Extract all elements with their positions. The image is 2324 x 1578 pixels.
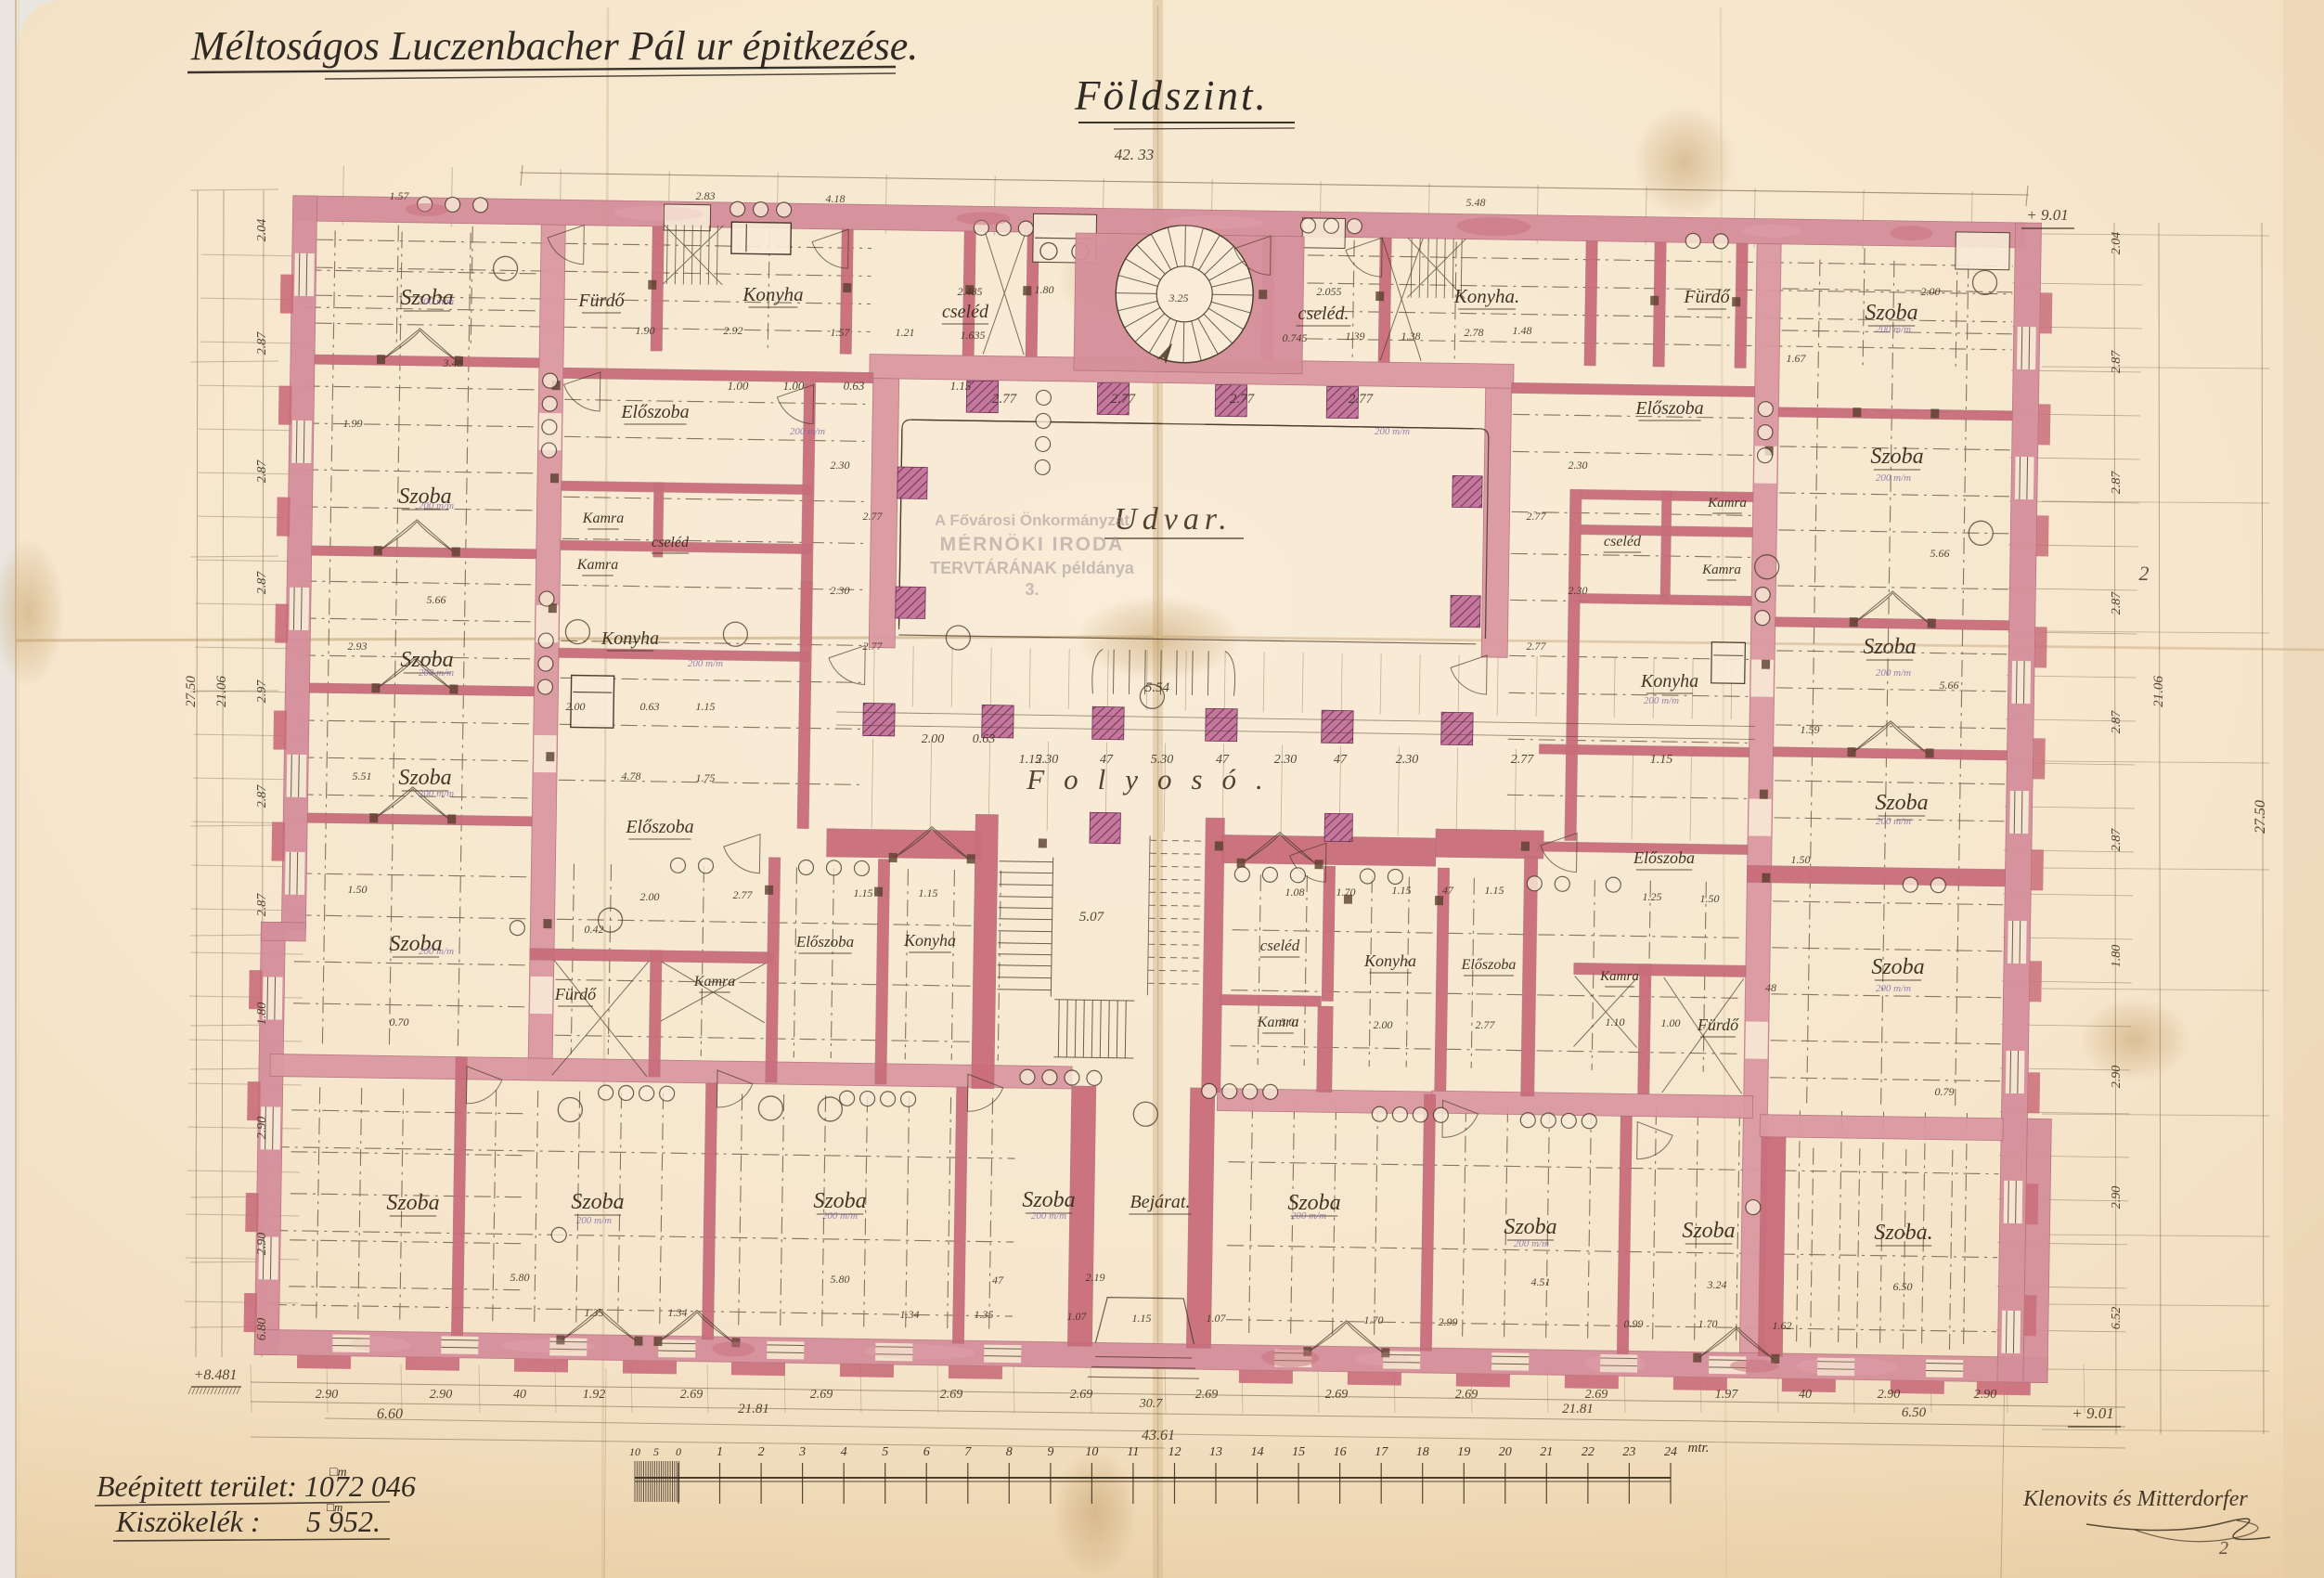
svg-text:1.15: 1.15 [950, 379, 972, 393]
svg-text:Kiszökelék :: Kiszökelék : [115, 1505, 261, 1538]
svg-text:5 952.: 5 952. [306, 1505, 381, 1538]
svg-text:cseléd: cseléd [1260, 937, 1300, 954]
svg-text:Előszoba: Előszoba [1633, 848, 1695, 867]
svg-text:Kamra: Kamra [693, 974, 735, 989]
svg-text:1.57: 1.57 [831, 326, 851, 339]
svg-text:Szoba: Szoba [398, 766, 451, 790]
svg-text:200 m/m: 200 m/m [1876, 816, 1911, 827]
svg-text:1.92: 1.92 [583, 1388, 606, 1402]
svg-text:2.19: 2.19 [1086, 1271, 1105, 1284]
svg-text:200 m/m: 200 m/m [822, 1210, 858, 1222]
svg-text:1.90: 1.90 [636, 324, 655, 337]
svg-text:Konyha: Konyha [1640, 671, 1698, 692]
svg-text:40: 40 [1799, 1388, 1812, 1402]
svg-text:200 m/m: 200 m/m [1514, 1238, 1549, 1249]
svg-text:TERVTÁRÁNAK példánya: TERVTÁRÁNAK példánya [930, 558, 1135, 577]
svg-text:2.00: 2.00 [1921, 285, 1941, 298]
svg-text:2.87: 2.87 [2110, 710, 2124, 734]
svg-text:Szoba: Szoba [1865, 301, 1917, 325]
svg-text:1.62: 1.62 [1773, 1319, 1792, 1332]
svg-text:2.30: 2.30 [831, 584, 850, 597]
svg-text:1.59: 1.59 [1801, 723, 1820, 736]
svg-text:MÉRNÖKI IRODA: MÉRNÖKI IRODA [940, 534, 1125, 555]
svg-text:2.77: 2.77 [1111, 392, 1137, 407]
svg-text:Konyha.: Konyha. [1453, 285, 1520, 307]
svg-text:Szoba: Szoba [1022, 1188, 1075, 1212]
svg-text:+ 9.01: + 9.01 [2072, 1404, 2113, 1422]
svg-text:1.80: 1.80 [2110, 945, 2124, 968]
svg-text:200 m/m: 200 m/m [1876, 667, 1911, 679]
svg-text:20: 20 [1499, 1445, 1512, 1459]
svg-text:2.77: 2.77 [1527, 510, 1547, 523]
svg-text:6: 6 [923, 1445, 930, 1459]
svg-text:2.77: 2.77 [992, 392, 1018, 407]
svg-text:2.83: 2.83 [696, 189, 716, 202]
svg-text:47: 47 [1334, 753, 1348, 767]
svg-text:Fürdő: Fürdő [577, 291, 625, 311]
svg-text:2.97: 2.97 [255, 679, 269, 704]
svg-text:2.04: 2.04 [2110, 232, 2124, 255]
svg-text:Fürdő: Fürdő [1697, 1015, 1739, 1034]
svg-text:10: 10 [1085, 1445, 1098, 1459]
svg-text:1.67: 1.67 [1787, 352, 1807, 365]
svg-text:21: 21 [1540, 1445, 1553, 1459]
svg-text:2: 2 [758, 1445, 765, 1459]
svg-text:2.90: 2.90 [255, 1117, 269, 1140]
svg-text:Klenovits és Mitterdorfer: Klenovits és Mitterdorfer [2022, 1487, 2248, 1511]
svg-text:2.30: 2.30 [1036, 753, 1059, 767]
svg-text:200 m/m: 200 m/m [1876, 983, 1911, 994]
svg-text:47: 47 [992, 1274, 1004, 1287]
svg-text:2.77: 2.77 [863, 640, 884, 653]
svg-text:2.30: 2.30 [1569, 459, 1588, 472]
svg-text:2.87: 2.87 [2110, 591, 2124, 615]
svg-text:1.15: 1.15 [1485, 884, 1504, 897]
svg-text:2.00: 2.00 [566, 700, 586, 713]
svg-text:Előszoba: Előszoba [1634, 398, 1703, 419]
svg-text:2.00: 2.00 [1374, 1018, 1393, 1031]
svg-text:5.80: 5.80 [510, 1271, 530, 1284]
svg-text:cseléd: cseléd [652, 535, 690, 550]
svg-text:4.18: 4.18 [826, 192, 846, 205]
svg-text:21.06: 21.06 [2151, 676, 2166, 707]
svg-text:21.06: 21.06 [214, 676, 229, 707]
svg-text:1.35: 1.35 [975, 1308, 994, 1321]
svg-text:2.69: 2.69 [1195, 1388, 1219, 1402]
svg-text:5.30: 5.30 [1151, 753, 1174, 767]
svg-text:+ 9.01: + 9.01 [2026, 206, 2068, 224]
svg-text:Udvar.: Udvar. [1114, 502, 1233, 537]
svg-text:□m: □m [329, 1466, 347, 1480]
svg-text:8: 8 [1006, 1445, 1013, 1459]
svg-text:10: 10 [629, 1445, 640, 1458]
svg-text:Konyha: Konyha [742, 283, 803, 305]
svg-text:Szoba: Szoba [386, 1191, 439, 1215]
svg-text:3.01: 3.01 [1280, 1015, 1300, 1028]
svg-text:200 m/m: 200 m/m [419, 788, 454, 799]
svg-text:7: 7 [964, 1445, 972, 1459]
svg-text:200 m/m: 200 m/m [576, 1215, 612, 1226]
svg-text:2.69: 2.69 [810, 1388, 833, 1402]
svg-text:1.21: 1.21 [896, 326, 915, 339]
svg-text:2.30: 2.30 [1569, 584, 1588, 597]
svg-text:200 m/m: 200 m/m [419, 946, 454, 957]
svg-text:Kamra: Kamra [1599, 969, 1639, 984]
svg-text:3.: 3. [1025, 580, 1039, 599]
svg-text:2.77: 2.77 [1349, 392, 1375, 407]
svg-text:2.77: 2.77 [1230, 392, 1256, 407]
svg-text:3: 3 [798, 1445, 806, 1459]
svg-text:3.48: 3.48 [443, 356, 463, 369]
svg-text:2.78: 2.78 [1465, 326, 1484, 339]
svg-text:42. 33: 42. 33 [1115, 146, 1155, 163]
svg-text:1.15: 1.15 [1392, 884, 1412, 897]
svg-text:200 m/m: 200 m/m [1876, 324, 1911, 335]
svg-text:1.15: 1.15 [1132, 1312, 1152, 1325]
svg-text:Szoba: Szoba [1863, 635, 1916, 659]
svg-text:1.80: 1.80 [255, 1002, 269, 1026]
svg-text:1.07: 1.07 [1207, 1312, 1227, 1325]
svg-text:1: 1 [717, 1445, 723, 1459]
svg-text:Fürdő: Fürdő [1683, 287, 1730, 307]
svg-text:1.97: 1.97 [1715, 1388, 1739, 1402]
svg-text:200 m/m: 200 m/m [688, 658, 723, 669]
svg-text:13: 13 [1209, 1445, 1222, 1459]
svg-text:Előszoba: Előszoba [795, 933, 854, 951]
svg-text:16: 16 [1334, 1445, 1347, 1459]
svg-text:23: 23 [1622, 1445, 1635, 1459]
svg-text:200 m/m: 200 m/m [1876, 472, 1911, 484]
svg-text:5.07: 5.07 [1079, 910, 1105, 925]
svg-text:1.70: 1.70 [1336, 886, 1356, 899]
svg-text:5.66: 5.66 [1940, 679, 1959, 692]
svg-text:47: 47 [1216, 753, 1230, 767]
svg-text:0.63: 0.63 [973, 732, 996, 746]
svg-text:2.87: 2.87 [2110, 828, 2124, 852]
svg-text:0.70: 0.70 [390, 1015, 409, 1028]
svg-text:2.00: 2.00 [922, 732, 945, 746]
svg-text:200 m/m: 200 m/m [1291, 1210, 1326, 1222]
svg-text:1.15: 1.15 [854, 886, 873, 899]
svg-text:9: 9 [1047, 1445, 1053, 1459]
svg-text:1.38: 1.38 [1401, 330, 1421, 343]
svg-text:1.00: 1.00 [783, 379, 805, 393]
svg-text:22: 22 [1582, 1445, 1595, 1459]
svg-text:2.00: 2.00 [640, 890, 660, 903]
svg-text:200 m/m: 200 m/m [419, 296, 454, 307]
svg-text:200 m/m: 200 m/m [1031, 1210, 1066, 1222]
svg-text:21.81: 21.81 [1562, 1402, 1594, 1416]
svg-text:5.66: 5.66 [1930, 547, 1950, 560]
svg-text:2.87: 2.87 [255, 331, 269, 356]
svg-text:Beépitett terület: 1072 046: Beépitett terület: 1072 046 [97, 1469, 416, 1503]
svg-text:1.39: 1.39 [1346, 330, 1365, 343]
svg-text:6.60: 6.60 [377, 1406, 403, 1422]
svg-text:0.63: 0.63 [640, 700, 660, 713]
svg-text:Előszoba: Előszoba [625, 817, 693, 837]
svg-text:5: 5 [882, 1445, 888, 1459]
svg-text:3.24: 3.24 [1707, 1278, 1727, 1291]
svg-text:2.30: 2.30 [831, 459, 850, 472]
svg-text:1.75: 1.75 [696, 771, 716, 784]
svg-text:1.70: 1.70 [1698, 1317, 1718, 1330]
svg-text:200 m/m: 200 m/m [1644, 695, 1679, 706]
svg-text:0.42: 0.42 [585, 923, 604, 936]
svg-text:24: 24 [1664, 1445, 1677, 1459]
svg-text:4.51: 4.51 [1531, 1275, 1551, 1288]
svg-text:5.51: 5.51 [353, 770, 372, 783]
svg-text:1.99: 1.99 [343, 417, 363, 430]
svg-text:Szoba: Szoba [1504, 1215, 1556, 1239]
svg-text:2.485: 2.485 [958, 285, 983, 298]
svg-text:2.30: 2.30 [1396, 753, 1419, 767]
svg-text:14: 14 [1251, 1445, 1264, 1459]
svg-text:Kamra: Kamra [1707, 496, 1747, 511]
svg-text:18: 18 [1416, 1445, 1429, 1459]
svg-text:2: 2 [2139, 562, 2150, 585]
svg-text:1.70: 1.70 [1364, 1313, 1384, 1326]
svg-text:2.93: 2.93 [348, 640, 368, 653]
svg-text:30.7: 30.7 [1139, 1397, 1164, 1411]
svg-text:2.90: 2.90 [316, 1388, 339, 1402]
svg-text:200 m/m: 200 m/m [419, 667, 454, 679]
svg-text:2.69: 2.69 [940, 1388, 963, 1402]
svg-text:1.15: 1.15 [1650, 753, 1673, 767]
svg-text:Szoba: Szoba [1870, 445, 1923, 469]
svg-text:6.50: 6.50 [1893, 1280, 1913, 1293]
svg-text:2.77: 2.77 [1476, 1018, 1496, 1031]
svg-text:2.77: 2.77 [1511, 753, 1535, 767]
svg-text:Méltoságos Luczenbacher Pál ur: Méltoságos Luczenbacher Pál ur épitkezés… [190, 23, 918, 69]
svg-text:200 m/m: 200 m/m [790, 426, 825, 437]
svg-text:Szoba.: Szoba. [1874, 1221, 1932, 1245]
svg-text:6.52: 6.52 [2110, 1307, 2124, 1330]
svg-text:5.80: 5.80 [831, 1273, 850, 1286]
svg-text:Előszoba: Előszoba [620, 402, 689, 422]
svg-text:2.69: 2.69 [1585, 1388, 1608, 1402]
svg-text:+8.481: +8.481 [194, 1367, 238, 1383]
svg-text:2.87: 2.87 [255, 571, 269, 595]
svg-text:2.90: 2.90 [1974, 1388, 1997, 1402]
svg-text:cseléd: cseléd [1604, 534, 1642, 550]
svg-text:0.79: 0.79 [1935, 1085, 1955, 1098]
svg-text:Szoba: Szoba [1871, 955, 1924, 979]
svg-text:0.99: 0.99 [1624, 1317, 1644, 1330]
svg-text:6.50: 6.50 [1902, 1405, 1927, 1420]
svg-text:2.69: 2.69 [1325, 1388, 1349, 1402]
svg-text:Konyha: Konyha [600, 628, 659, 649]
svg-text:40: 40 [513, 1388, 526, 1402]
svg-text:Szoba: Szoba [1682, 1219, 1735, 1243]
svg-text:2.77: 2.77 [733, 888, 754, 901]
svg-text:Kamra: Kamra [582, 511, 624, 526]
svg-text:1.35: 1.35 [585, 1306, 604, 1319]
svg-text:□m: □m [327, 1500, 342, 1514]
svg-text:Bejárat.: Bejárat. [1130, 1192, 1191, 1212]
svg-text:5.48: 5.48 [1466, 196, 1486, 209]
svg-text:21.81: 21.81 [738, 1402, 769, 1416]
svg-text:1.34: 1.34 [900, 1308, 920, 1321]
svg-text:2.92: 2.92 [724, 324, 743, 337]
svg-text:3.25: 3.25 [1168, 291, 1189, 304]
svg-text:1.15: 1.15 [696, 700, 716, 713]
svg-text:mtr.: mtr. [1688, 1441, 1710, 1455]
svg-text:2.04: 2.04 [255, 219, 269, 242]
svg-text:200 m/m: 200 m/m [419, 500, 454, 511]
svg-text:cseléd: cseléd [942, 302, 989, 322]
svg-text:5.54: 5.54 [1145, 680, 1170, 695]
svg-text:1.57: 1.57 [390, 189, 410, 202]
svg-text:4: 4 [841, 1445, 847, 1459]
svg-text:Előszoba: Előszoba [1461, 957, 1517, 973]
svg-text:5: 5 [653, 1445, 659, 1458]
svg-text:Folyosó.: Folyosó. [1026, 763, 1283, 795]
svg-text:2: 2 [2219, 1538, 2228, 1559]
svg-text:Fürdő: Fürdő [554, 985, 597, 1003]
svg-text:2.69: 2.69 [680, 1388, 704, 1402]
svg-text:2.69: 2.69 [1455, 1388, 1478, 1402]
svg-text:2.87: 2.87 [2110, 350, 2124, 374]
svg-text:2.87: 2.87 [255, 459, 269, 484]
svg-text:1.50: 1.50 [1700, 892, 1720, 905]
svg-text:1.00: 1.00 [728, 379, 749, 393]
svg-text:4.78: 4.78 [622, 770, 641, 783]
svg-text:1.10: 1.10 [1606, 1015, 1625, 1028]
svg-text:5.66: 5.66 [427, 593, 446, 606]
svg-text:1.25: 1.25 [1643, 890, 1662, 903]
svg-text:17: 17 [1375, 1445, 1388, 1459]
svg-text:1.48: 1.48 [1513, 324, 1532, 337]
svg-text:2.87: 2.87 [2110, 471, 2124, 495]
svg-text:Kamra: Kamra [1701, 563, 1741, 577]
svg-text:Kamra: Kamra [576, 557, 618, 573]
svg-text:2.90: 2.90 [1878, 1388, 1901, 1402]
svg-text:43.61: 43.61 [1142, 1428, 1175, 1443]
svg-text:Konyha: Konyha [903, 931, 956, 950]
svg-text:2.055: 2.055 [1317, 285, 1342, 298]
svg-text:15: 15 [1292, 1445, 1305, 1459]
svg-text:0.745: 0.745 [1283, 331, 1308, 344]
svg-text:27.50: 27.50 [2253, 800, 2268, 834]
svg-text:2.77: 2.77 [1527, 640, 1547, 653]
svg-text:11: 11 [1127, 1445, 1139, 1459]
svg-text:1.80: 1.80 [1035, 283, 1054, 296]
svg-text:1.15: 1.15 [919, 886, 938, 899]
svg-text:Szoba: Szoba [1875, 791, 1928, 815]
svg-text:47: 47 [1442, 884, 1454, 897]
svg-text:2.30: 2.30 [1274, 753, 1298, 767]
svg-text:19: 19 [1457, 1445, 1470, 1459]
svg-text:1.34: 1.34 [668, 1306, 688, 1319]
svg-text:2.69: 2.69 [1070, 1388, 1093, 1402]
svg-text:27.50: 27.50 [184, 676, 199, 707]
svg-text:1.08: 1.08 [1285, 886, 1305, 899]
svg-text:1.07: 1.07 [1067, 1310, 1088, 1323]
svg-text:cseléd.: cseléd. [1298, 304, 1349, 324]
svg-text:Földszint.: Földszint. [1074, 72, 1269, 119]
svg-text:1.50: 1.50 [1791, 853, 1811, 866]
svg-text:1.00: 1.00 [1661, 1016, 1681, 1029]
svg-text:2.87: 2.87 [255, 784, 269, 808]
svg-text:2.87: 2.87 [255, 893, 269, 917]
svg-text:2.90: 2.90 [2110, 1066, 2124, 1089]
svg-text:Szoba: Szoba [571, 1190, 624, 1214]
svg-text:2.77: 2.77 [863, 510, 884, 523]
svg-text:2.90: 2.90 [430, 1388, 453, 1402]
svg-text:12: 12 [1168, 1445, 1181, 1459]
svg-text:6.80: 6.80 [255, 1318, 269, 1341]
svg-text:48: 48 [1765, 981, 1776, 994]
svg-text:Konyha: Konyha [1363, 951, 1416, 970]
svg-text:2.99: 2.99 [1439, 1315, 1458, 1328]
svg-text:2.90: 2.90 [2110, 1186, 2124, 1209]
svg-text:47: 47 [1100, 753, 1114, 767]
svg-text:0.63: 0.63 [844, 379, 865, 393]
svg-text:200 m/m: 200 m/m [1375, 426, 1410, 437]
svg-text:2.90: 2.90 [255, 1233, 269, 1256]
svg-text:A Fővárosi Önkormányzat: A Fővárosi Önkormányzat [935, 511, 1130, 529]
svg-text:1.50: 1.50 [348, 883, 368, 896]
svg-text:1.635: 1.635 [961, 329, 986, 342]
svg-text:0: 0 [676, 1445, 681, 1458]
